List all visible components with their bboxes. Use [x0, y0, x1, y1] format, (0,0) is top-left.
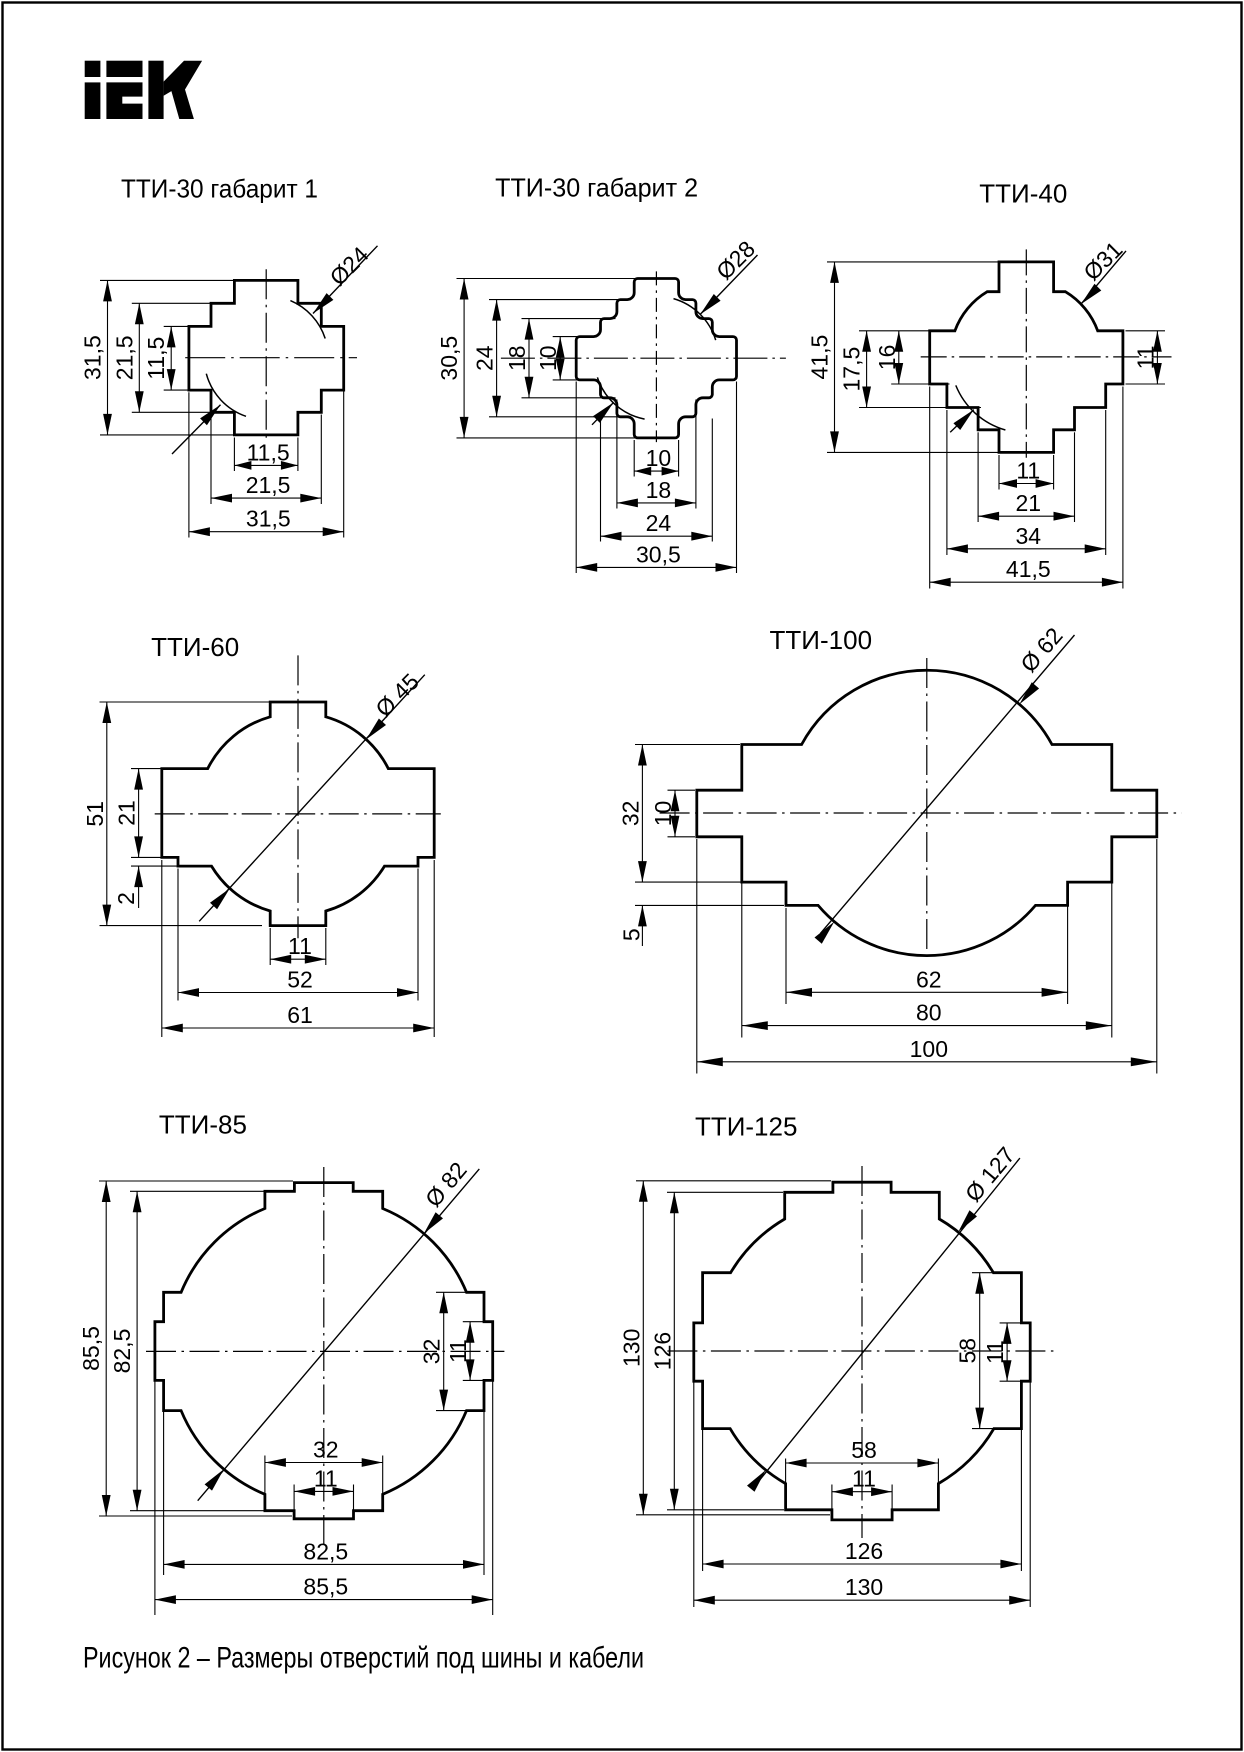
- svg-text:31,5: 31,5: [246, 506, 291, 532]
- svg-text:11: 11: [852, 1466, 876, 1492]
- svg-text:ТТИ-100: ТТИ-100: [770, 625, 873, 655]
- svg-text:18: 18: [504, 345, 530, 371]
- svg-text:21: 21: [114, 800, 140, 826]
- svg-text:11: 11: [982, 1340, 1008, 1364]
- svg-text:11: 11: [288, 933, 312, 959]
- svg-text:21,5: 21,5: [111, 335, 137, 380]
- svg-text:24: 24: [646, 510, 672, 536]
- svg-text:51: 51: [82, 801, 108, 827]
- svg-text:ТТИ-60: ТТИ-60: [151, 632, 239, 662]
- svg-text:10: 10: [646, 445, 672, 471]
- svg-text:58: 58: [851, 1437, 877, 1463]
- svg-text:ТТИ-30 габарит 1: ТТИ-30 габарит 1: [121, 174, 318, 204]
- svg-text:10: 10: [650, 801, 676, 827]
- svg-text:32: 32: [313, 1437, 339, 1463]
- svg-text:62: 62: [916, 966, 942, 992]
- svg-text:11,5: 11,5: [143, 337, 169, 380]
- svg-text:61: 61: [287, 1002, 313, 1028]
- svg-text:82,5: 82,5: [109, 1329, 135, 1374]
- svg-text:85,5: 85,5: [303, 1574, 348, 1600]
- svg-text:10: 10: [535, 345, 561, 371]
- svg-text:31,5: 31,5: [80, 335, 106, 380]
- svg-text:41,5: 41,5: [1006, 556, 1051, 582]
- svg-text:11: 11: [314, 1465, 338, 1491]
- svg-text:41,5: 41,5: [807, 335, 833, 380]
- svg-text:126: 126: [649, 1332, 675, 1370]
- svg-text:32: 32: [419, 1339, 445, 1365]
- svg-text:16: 16: [874, 345, 900, 371]
- svg-text:Рисунок 2 – Размеры отверстий: Рисунок 2 – Размеры отверстий под шины и…: [83, 1642, 644, 1675]
- svg-text:126: 126: [845, 1538, 883, 1564]
- svg-text:ТТИ-40: ТТИ-40: [979, 179, 1067, 209]
- svg-text:130: 130: [845, 1574, 883, 1600]
- svg-text:34: 34: [1016, 523, 1042, 549]
- svg-text:11: 11: [1016, 458, 1040, 484]
- svg-text:11: 11: [445, 1339, 471, 1363]
- svg-text:58: 58: [955, 1338, 981, 1364]
- svg-text:85,5: 85,5: [78, 1326, 104, 1371]
- svg-text:5: 5: [618, 928, 644, 941]
- svg-text:ТТИ-85: ТТИ-85: [159, 1109, 247, 1139]
- svg-text:ТТИ-125: ТТИ-125: [695, 1112, 798, 1142]
- svg-text:24: 24: [472, 345, 498, 371]
- svg-text:30,5: 30,5: [436, 336, 462, 381]
- svg-text:2: 2: [113, 892, 139, 905]
- svg-text:18: 18: [646, 477, 672, 503]
- svg-text:21,5: 21,5: [246, 472, 291, 498]
- svg-text:82,5: 82,5: [303, 1538, 348, 1564]
- svg-text:11: 11: [1132, 345, 1158, 369]
- svg-text:ТТИ-30 габарит 2: ТТИ-30 габарит 2: [495, 173, 698, 203]
- svg-text:17,5: 17,5: [839, 347, 865, 392]
- svg-text:100: 100: [910, 1036, 948, 1062]
- svg-text:32: 32: [617, 801, 643, 827]
- svg-text:11,5: 11,5: [247, 439, 290, 465]
- svg-text:130: 130: [618, 1329, 644, 1367]
- svg-text:30,5: 30,5: [636, 541, 681, 567]
- svg-text:52: 52: [287, 967, 313, 993]
- svg-text:21: 21: [1016, 490, 1042, 516]
- svg-text:80: 80: [916, 1000, 942, 1026]
